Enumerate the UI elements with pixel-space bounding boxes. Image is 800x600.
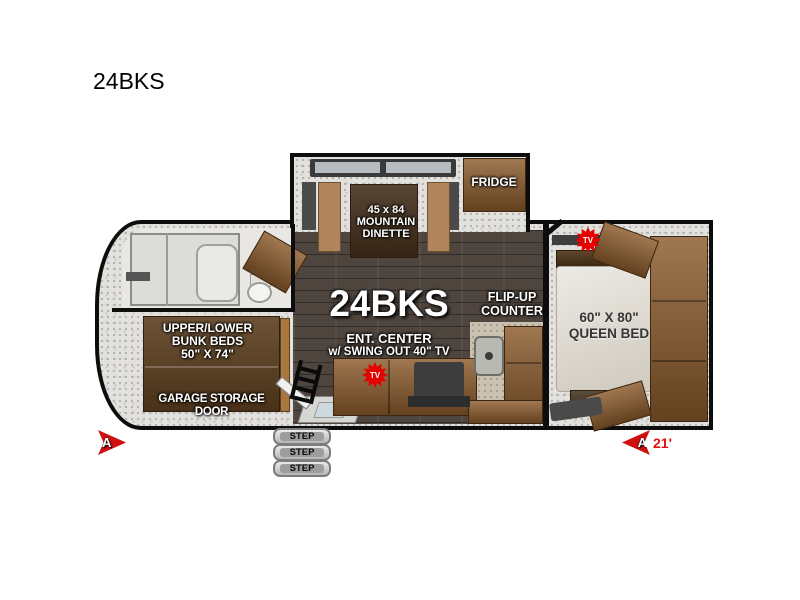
fridge-label: FRIDGE [461,176,527,189]
shower-pan [196,244,238,302]
kitchen-cabinet-line [506,362,541,364]
floorplan-canvas: 24BKS 45 x 84 MOUNTAIN DINETTE FRIDGE UP… [0,0,800,600]
marker-a-left-icon: A [98,430,126,455]
bathroom-wall [112,308,295,312]
step-2: STEP [273,444,331,461]
dinette-label: 45 x 84 MOUNTAIN DINETTE [336,204,436,240]
toilet [247,282,272,303]
vanity [126,272,150,281]
dinette-arm [302,182,316,230]
length-label: 21' [653,435,672,451]
wardrobe-door-line [652,300,706,302]
bunk-divider [145,366,278,368]
tv-unit [414,362,464,400]
kitchen-lower-cabinet [468,400,543,424]
step-1: STEP [273,428,331,445]
window-pane [386,162,451,173]
wardrobe-door-line [652,360,706,362]
ent-center-divider [388,360,390,414]
bathroom-wall-right [291,224,295,312]
shower-glass [166,233,168,306]
step-3: STEP [273,460,331,477]
sink-drain [485,352,493,360]
queen-bed-label: 60" X 80" QUEEN BED [556,310,662,341]
flip-up-counter-label: FLIP-UP COUNTER [466,291,558,319]
model-label: 24BKS [304,284,474,325]
window-pane [315,162,380,173]
page-title: 24BKS [93,68,165,95]
garage-storage-label: GARAGE STORAGE DOOR [141,393,282,418]
bunk-label: UPPER/LOWER BUNK BEDS 50" X 74" [145,322,270,362]
marker-a-right-icon: A [622,430,650,455]
tv-unit-base [408,396,470,407]
ent-center-label: ENT. CENTER w/ SWING OUT 40" TV [304,332,474,359]
